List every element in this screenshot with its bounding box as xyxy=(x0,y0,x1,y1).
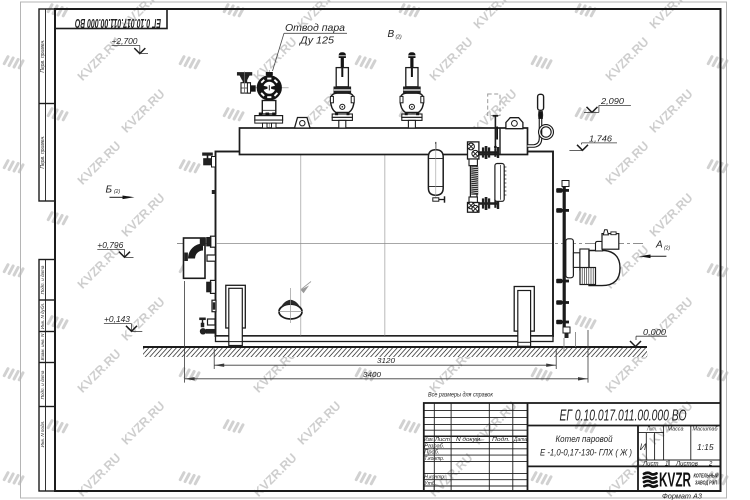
svg-text:ЕГ 0.10.017.011.00.000 ВО: ЕГ 0.10.017.011.00.000 ВО xyxy=(75,16,161,30)
svg-text:Ду 125: Ду 125 xyxy=(299,35,334,47)
svg-text:Перв. примен.: Перв. примен. xyxy=(40,39,46,72)
svg-text:(2): (2) xyxy=(396,35,402,41)
svg-text:KVZR: KVZR xyxy=(659,469,691,492)
svg-text:Утб.: Утб. xyxy=(424,481,436,487)
svg-text:Лит.: Лит. xyxy=(646,427,657,433)
svg-text:3120: 3120 xyxy=(377,358,395,365)
svg-text:Лист: Лист xyxy=(642,461,658,467)
svg-text:N докум.: N докум. xyxy=(456,437,482,443)
svg-text:0,000: 0,000 xyxy=(643,328,667,337)
svg-text:ЗАВОД РЭП: ЗАВОД РЭП xyxy=(695,481,717,487)
svg-text:+0,143: +0,143 xyxy=(104,315,131,324)
svg-text:(2): (2) xyxy=(664,246,670,252)
svg-text:Проб.: Проб. xyxy=(424,450,439,456)
svg-text:Т.контр.: Т.контр. xyxy=(424,456,444,462)
svg-text:+0,796: +0,796 xyxy=(97,241,124,250)
svg-text:Подп. и дата: Подп. и дата xyxy=(40,265,45,294)
svg-text:ЕГ 0.10.017.011.00.000 ВО: ЕГ 0.10.017.011.00.000 ВО xyxy=(560,408,687,425)
svg-text:Котел паровой: Котел паровой xyxy=(556,434,613,444)
svg-text:Взам. инв. N: Взам. инв. N xyxy=(40,333,45,360)
svg-text:Масштаб: Масштаб xyxy=(693,427,718,433)
svg-text:Перв. примен.: Перв. примен. xyxy=(40,135,46,168)
svg-text:2,090: 2,090 xyxy=(600,97,625,106)
svg-text:1:15: 1:15 xyxy=(697,442,714,452)
svg-text:КОТЕЛЬНЫЙ: КОТЕЛЬНЫЙ xyxy=(694,472,719,480)
svg-text:Н.контр.: Н.контр. xyxy=(424,475,445,481)
svg-text:Подп.: Подп. xyxy=(492,437,510,443)
svg-text:(2): (2) xyxy=(114,189,120,195)
svg-text:Листов: Листов xyxy=(675,461,698,467)
svg-text:Инв. N подл.: Инв. N подл. xyxy=(40,421,45,448)
svg-text:Б: Б xyxy=(106,185,113,196)
svg-text:А: А xyxy=(655,240,663,251)
svg-text:Дата: Дата xyxy=(513,437,527,443)
svg-text:Инв. N дубл.: Инв. N дубл. xyxy=(40,303,45,330)
svg-text:В: В xyxy=(388,29,395,40)
svg-text:Отвод пара: Отвод пара xyxy=(285,22,345,34)
svg-text:3400: 3400 xyxy=(363,372,381,379)
svg-text:+2,700: +2,700 xyxy=(112,37,139,46)
svg-text:Масса: Масса xyxy=(668,427,684,433)
svg-text:1: 1 xyxy=(665,461,668,467)
svg-text:1,746: 1,746 xyxy=(589,135,613,144)
svg-text:Е -1,0-0,17-130- ГЛХ ( Ж ): Е -1,0-0,17-130- ГЛХ ( Ж ) xyxy=(540,447,632,457)
svg-text:И: И xyxy=(640,442,647,452)
svg-text:Разраб.: Разраб. xyxy=(424,443,444,449)
svg-text:2: 2 xyxy=(708,461,713,467)
svg-text:Подп. и дата: Подп. и дата xyxy=(40,370,45,399)
svg-text:Все размеры для справок: Все размеры для справок xyxy=(428,391,494,399)
svg-text:Формат А3: Формат А3 xyxy=(662,492,703,500)
svg-text:Лист: Лист xyxy=(434,437,450,443)
svg-text:Изм.: Изм. xyxy=(424,437,434,443)
